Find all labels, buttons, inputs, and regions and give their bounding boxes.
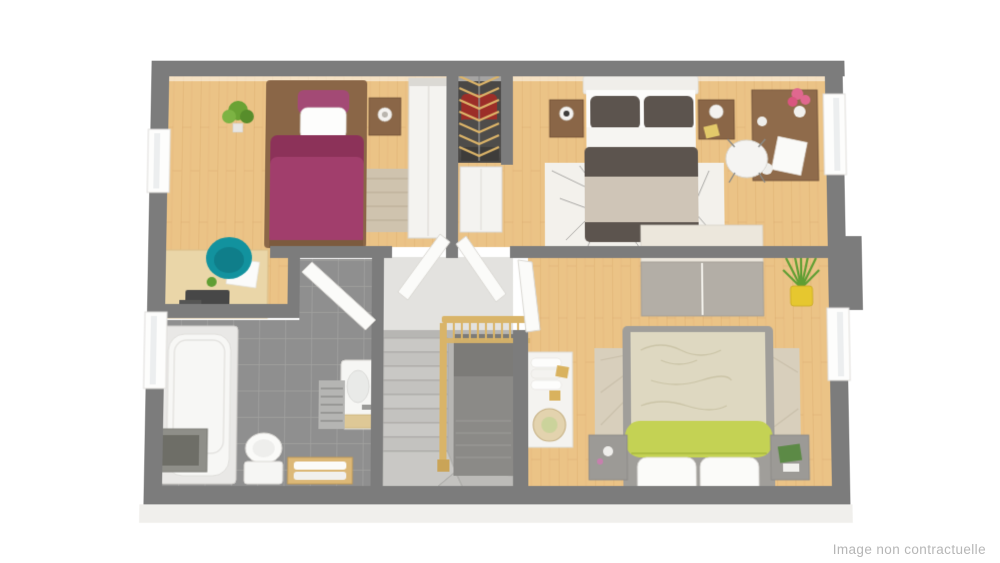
- watermark-text: Image non contractuelle: [833, 542, 986, 557]
- wardrobe-large: [641, 225, 764, 316]
- wall-bathroom-east: [370, 258, 384, 502]
- floorplan-3d-view: [0, 4, 1000, 563]
- sink: [341, 360, 376, 429]
- wall-bedroom3-west: [513, 330, 528, 502]
- wall-top: [151, 61, 844, 77]
- window-left-bedroom1: [147, 129, 170, 192]
- window-right-bedroom3: [827, 308, 850, 380]
- nightstand: [369, 98, 401, 135]
- nightstand-right-gray: [770, 435, 809, 480]
- stairwell: [453, 334, 513, 476]
- wall-bathroom-north: [147, 304, 300, 318]
- toilet: [244, 433, 283, 484]
- window-right-master: [823, 94, 846, 175]
- wall-vestibule-west: [287, 258, 300, 318]
- staircase: [380, 316, 530, 502]
- wall-bottom: [143, 486, 850, 504]
- wall-hall-north-right: [510, 246, 846, 258]
- floorplan-render: Image non contractuelle: [0, 0, 1000, 563]
- double-bed: [583, 76, 700, 242]
- towel-rack: [288, 457, 353, 483]
- wall-hall-north-left: [270, 246, 392, 258]
- double-bed-green: [622, 326, 775, 508]
- white-dresser: [460, 167, 502, 232]
- bath-mat: [318, 380, 345, 429]
- floor-slab-edge: [139, 504, 853, 522]
- nightstand-left-gray: [589, 435, 628, 480]
- nightstand-left: [550, 100, 584, 137]
- wall-closet-west: [446, 61, 458, 258]
- wardrobe: [408, 78, 448, 238]
- floorplan-svg: [0, 4, 1000, 563]
- sideboard: [526, 352, 573, 447]
- single-bed: [264, 80, 367, 248]
- nightstand-right: [698, 100, 734, 139]
- stair-treads: [383, 338, 448, 451]
- window-left-bathroom: [144, 312, 167, 388]
- wall-closet-east: [501, 61, 513, 165]
